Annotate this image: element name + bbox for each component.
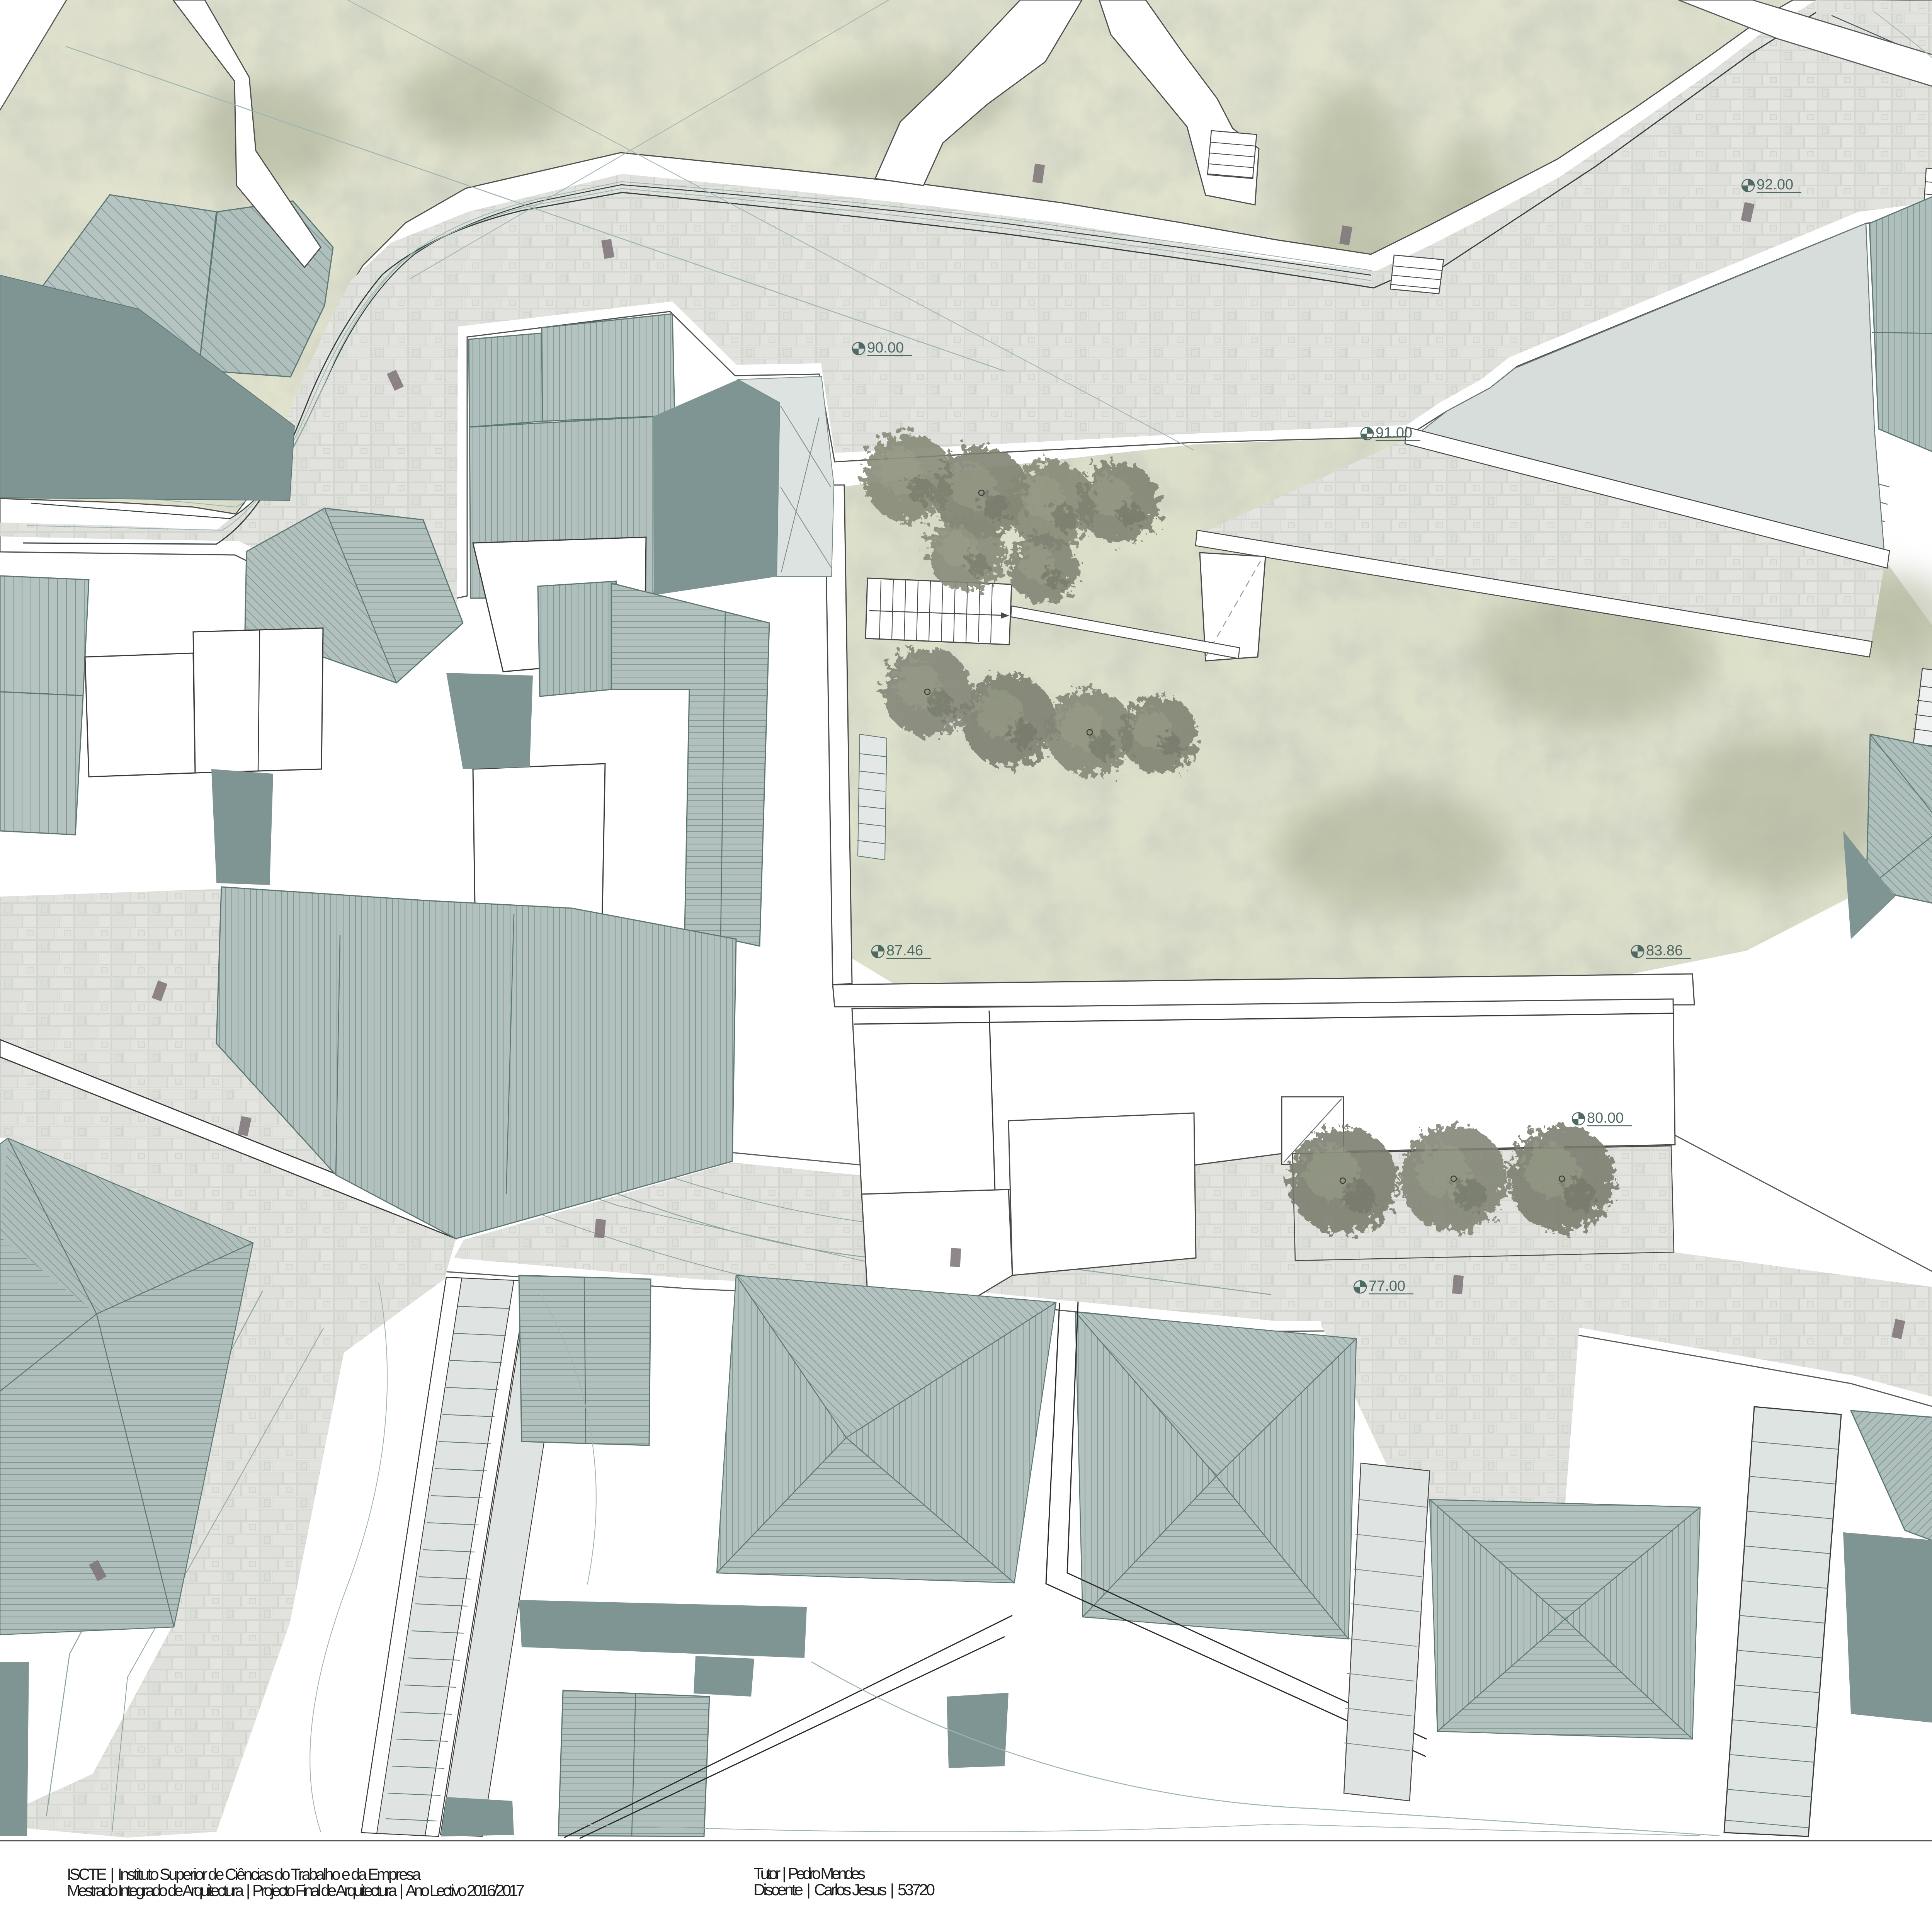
svg-text:ISCTE | Instituto Superior d: ISCTE | Instituto Superior de Ciências d… — [67, 1865, 422, 1883]
svg-text:83.86: 83.86 — [1646, 943, 1683, 959]
svg-text:90.00: 90.00 — [867, 340, 904, 356]
svg-text:87.46: 87.46 — [886, 943, 923, 959]
svg-text:Tutor | Pedro Mendes: Tutor | Pedro Mendes — [753, 1864, 866, 1882]
svg-text:80.00: 80.00 — [1587, 1110, 1624, 1126]
svg-text:Mestrado Integrado de Arquitec: Mestrado Integrado de Arquitectura | Pro… — [67, 1881, 525, 1899]
svg-text:91.00: 91.00 — [1376, 425, 1412, 441]
svg-text:92.00: 92.00 — [1757, 177, 1793, 193]
svg-text:77.00: 77.00 — [1369, 1278, 1405, 1294]
svg-text:Discente | Carlos Jesus |: Discente | Carlos Jesus | 53720 — [753, 1881, 935, 1899]
